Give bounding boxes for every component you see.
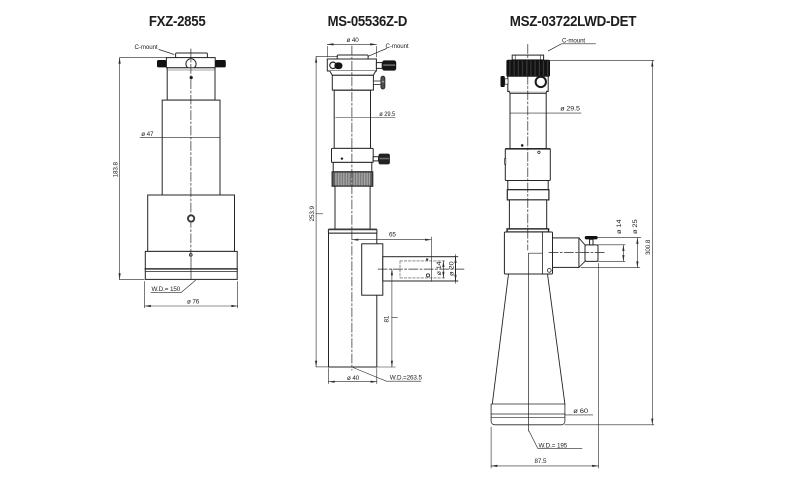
svg-text:ø 14: ø 14 xyxy=(616,219,623,234)
svg-text:ø 40: ø 40 xyxy=(347,375,360,382)
svg-text:ø 14: ø 14 xyxy=(436,261,443,275)
svg-text:65: 65 xyxy=(389,232,396,239)
svg-text:ø 60: ø 60 xyxy=(573,408,588,415)
svg-text:ø 25: ø 25 xyxy=(632,219,639,234)
svg-text:C-mount: C-mount xyxy=(135,44,158,51)
svg-text:FXZ-2855: FXZ-2855 xyxy=(149,14,206,30)
svg-text:ø 29.5: ø 29.5 xyxy=(379,111,395,118)
svg-text:MS-05536Z-D: MS-05536Z-D xyxy=(328,14,408,30)
svg-text:253.9: 253.9 xyxy=(309,206,316,222)
svg-text:ø 40: ø 40 xyxy=(347,37,360,44)
svg-text:183.8: 183.8 xyxy=(112,162,119,178)
svg-text:ø 20: ø 20 xyxy=(448,261,455,276)
svg-text:ø 47: ø 47 xyxy=(141,131,154,138)
svg-text:MSZ-03722LWD-DET: MSZ-03722LWD-DET xyxy=(510,14,637,30)
svg-text:81: 81 xyxy=(384,315,391,322)
svg-text:W.D.= 150: W.D.= 150 xyxy=(152,286,181,293)
svg-text:87.5: 87.5 xyxy=(535,458,547,465)
svg-text:300.8: 300.8 xyxy=(645,239,652,255)
svg-text:W.D.=263.5: W.D.=263.5 xyxy=(390,375,423,382)
svg-text:ø 76: ø 76 xyxy=(187,299,200,306)
svg-text:ø 29.5: ø 29.5 xyxy=(560,106,580,113)
svg-text:C-mount: C-mount xyxy=(386,43,409,50)
